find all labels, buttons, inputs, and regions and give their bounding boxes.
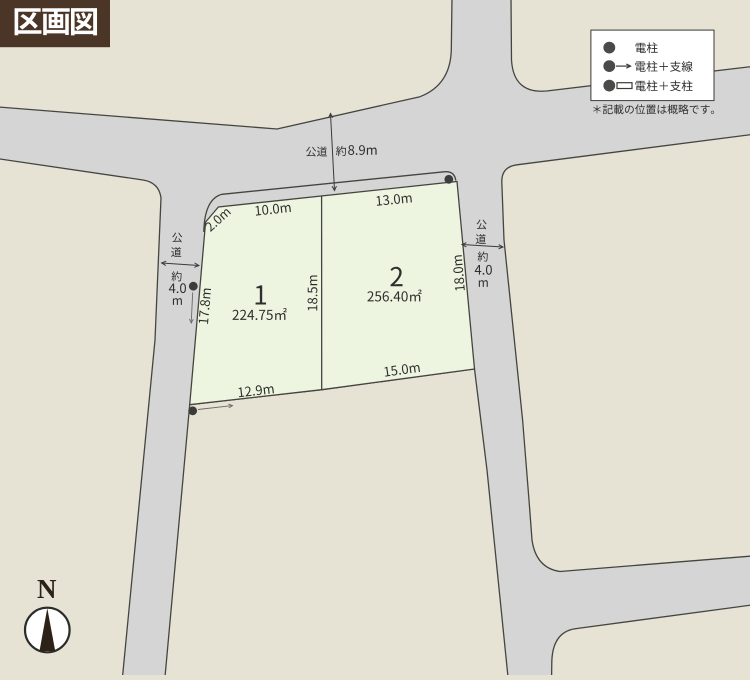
svg-text:N: N	[37, 574, 57, 604]
